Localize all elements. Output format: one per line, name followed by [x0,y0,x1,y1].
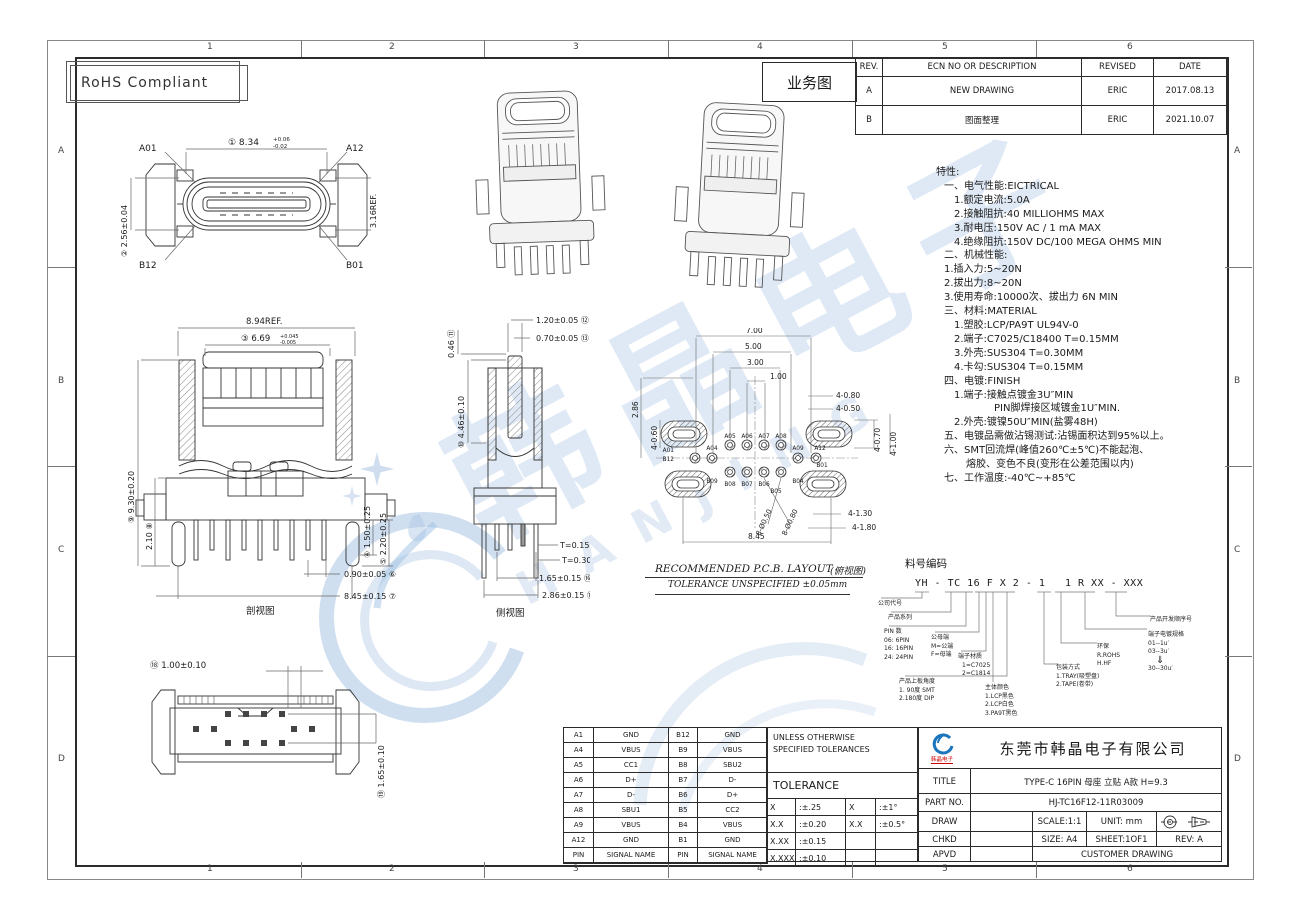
pin-cell: B6 [669,788,698,803]
zone-tick [47,267,75,268]
pin-cell: A7 [564,788,594,803]
zone-tick [47,656,75,657]
tol-cell [846,832,876,849]
company-logo-text: 韩晶电子 [931,755,953,764]
pin-cell: B7 [669,773,698,788]
pad-label-b12: B12 [663,457,675,463]
pin-cell: VBUS [698,743,767,758]
callout-plating-spec: 端子电镀规格 01--1u′ 03--3u′ ⇓ 30--30u′ [1148,631,1184,674]
third-angle-projection-icon [1160,814,1218,830]
zone-tick [1225,466,1252,467]
spec-line: 4.绝缘阻抗:150V DC/100 MEGA OHMS MIN [936,236,1224,250]
dim-0.46: 0.46 ⑪ [447,330,456,358]
pad-label-a01: A01 [663,448,675,454]
pad-label-b09: B09 [706,479,718,485]
bottom-view-drawing: ⑱ 1.00±0.10 ⑲ 1.65±0.10 [138,638,428,813]
pin-cell: VBUS [594,818,669,833]
zone-tick [301,40,302,57]
chkd-value [971,832,1033,847]
pcb-note-rule [655,594,850,595]
pin-label-b12: B12 [139,261,157,271]
pcb-layout-caption-cn: (俯视图) [830,563,866,577]
tol-cell: X [767,798,796,815]
rev-cell: 2017.08.13 [1154,77,1226,106]
section-view-caption: 剖视图 [246,605,275,617]
dim-2.86: 2.86±0.15 ⑰ [542,591,590,600]
spec-line: 三、材料:MATERIAL [936,305,1224,319]
callout-option: 03--3u′ [1148,648,1184,657]
zone-label-left: B [58,376,64,386]
pcb-layout-caption: RECOMMENDED P.C.B. LAYOUT [655,563,833,575]
pad-label-b08: B08 [724,482,736,488]
zone-label-right: A [1234,146,1240,156]
callout-title: 公司代号 [878,600,902,609]
dim-1.50: ④ 1.50±0.25 [363,506,372,558]
callout-dev-serial: 产品开发顺序号 [1150,616,1192,625]
tol-cell [876,832,919,849]
callout-title: 产品上板角度 [899,678,935,687]
pin-cell: GND [594,728,669,743]
dim-4-0.70: 4-0.70 [873,428,882,452]
dim-8.45: 8.45±0.15 ⑦ [344,592,396,601]
zone-label-top: 5 [942,42,948,52]
spec-line: 2.接触阻抗:40 MILLIOHMS MAX [936,208,1224,222]
tol-cell: :±0.5° [876,815,919,832]
zone-tick [484,40,485,57]
dim-3.16ref: 3.16REF. [369,194,378,228]
title-label: TITLE [919,769,971,794]
callout-option: 2.180度 DIP [899,695,935,704]
spec-line: 六、SMT回流焊(峰值260℃±5℃)不能起泡、 [936,444,1224,458]
pin-cell: A12 [564,833,594,848]
pin-cell: A9 [564,818,594,833]
tol-cell: X [846,798,876,815]
rev-cell: ERIC [1082,77,1154,106]
zone-tick [47,466,75,467]
spec-line: 1.塑胶:LCP/PA9T UL94V-0 [936,319,1224,333]
tol-cell: :±1° [876,798,919,815]
callout-title: 端子材质 [958,653,990,662]
callout-packaging: 包装方式 1.TRAY(吸塑盘) 2.TAPE(卷带) [1056,664,1099,690]
dim-3.00: 3.00 [747,358,764,367]
rev-cell: 图面整理 [883,106,1082,134]
dim-1.00: ⑱ 1.00±0.10 [150,661,206,671]
pad-label-a08: A08 [775,434,787,440]
dim-8.94ref: 8.94REF. [246,317,282,327]
rev-header: ECN NO OR DESCRIPTION [883,58,1082,77]
callout-option: H.HF [1097,660,1120,669]
spec-line: 3.使用寿命:10000次、拔出力 6N MIN [936,291,1224,305]
apvd-label: APVD [919,847,971,862]
pin-cell: D+ [594,773,669,788]
pad-label-b06: B06 [758,482,770,488]
zone-tick [301,862,302,878]
pin-cell: B8 [669,758,698,773]
zone-label-top: 4 [757,42,763,52]
tol-cell: X.XX [767,832,796,849]
pin-cell: A6 [564,773,594,788]
pcb-caption-rule [645,577,863,578]
tol-cell: :±.25 [796,798,846,815]
pad-label-b07: B07 [741,482,753,488]
pad-label-a09: A09 [792,446,804,452]
callout-title: 公母端 [931,634,953,643]
zone-label-right: C [1234,545,1240,555]
tol-cell: X.XXX [767,849,796,866]
dim-5.00: 5.00 [745,342,762,351]
zone-label-top: 6 [1127,42,1133,52]
rev-cell: B [856,106,883,134]
spec-line: PIN脚焊接区域镀金1U″MIN. [936,402,1224,416]
zone-tick [668,862,669,878]
dim-1.65: ⑲ 1.65±0.10 [377,745,386,798]
pin-label-b01: B01 [346,261,364,271]
pin-cell: B9 [669,743,698,758]
tolerance-note-line1: UNLESS OTHERWISE [773,732,917,744]
dim-6.69-tol-dn: -0.005 [280,340,296,346]
pin-cell: D- [698,773,767,788]
dim-2.20: ⑤ 2.20±0.25 [379,513,388,565]
partno-value: HJ-TC16F12-11R03009 [971,794,1221,812]
zone-label-top: 3 [573,42,579,52]
dim-4-0.50: 4-0.50 [836,404,860,413]
pin-cell: VBUS [698,818,767,833]
pad-label-a04: A04 [706,446,718,452]
pad-label-a12: A12 [814,446,826,452]
tolerance-grid: X :±.25 X :±1° X.X :±0.20 X.X :±0.5° X.X… [767,798,917,866]
callout-company-code: 公司代号 [878,600,902,609]
zone-tick [668,40,669,57]
zone-label-left: C [58,545,64,555]
dim-7.00: 7.00 [746,328,763,335]
company-logo-icon [930,733,954,755]
callout-option: 1.TRAY(吸塑盘) [1056,673,1099,682]
dim-4-0.60: 4-0.60 [650,426,659,450]
isometric-views-drawing [452,82,842,307]
rev-cell: A [856,77,883,106]
zone-tick [1036,862,1037,878]
pin-cell: A8 [564,803,594,818]
zone-tick [1036,40,1037,57]
pin-label-a12: A12 [346,144,364,154]
pad-label-a06: A06 [741,434,753,440]
dim-4-1.80: 4-1.80 [852,523,876,532]
draw-label: DRAW [919,812,971,832]
dim-9.30: ⑨ 9.30±0.20 [127,471,136,523]
draw-value [971,812,1033,832]
scale-value: SCALE:1:1 [1033,812,1087,832]
spec-line: 2.拔出力:8~20N [936,277,1224,291]
unit-value: UNIT: mm [1087,812,1157,832]
callout-body-color: 主体颜色 1.LCP黑色 2.LCP白色 3.PA9T黑色 [985,684,1018,718]
callout-option: 24: 24PIN [884,654,913,663]
pcb-layout-drawing: 7.00 5.00 3.00 1.00 4-0.80 4-0.50 2.86 4… [608,328,908,568]
pin-cell: D+ [698,788,767,803]
pin-cell: PIN [564,848,594,863]
pin-cell: SBU2 [698,758,767,773]
spec-line: 2.外壳:镀镍50U″MIN(盐雾48H) [936,416,1224,430]
callout-gender: 公母端 M=公端 F=母端 [931,634,953,660]
dim-4-1.00: 4-1.00 [889,432,898,456]
spec-line: 2.端子:C7025/C18400 T=0.15MM [936,333,1224,347]
pin-cell: CC2 [698,803,767,818]
spec-line: 4.卡勾:SUS304 T=0.15MM [936,361,1224,375]
zone-label-bottom: 6 [1127,864,1133,874]
zone-tick [1225,267,1252,268]
pin-cell: GND [594,833,669,848]
callout-title: 端子电镀规格 [1148,631,1184,640]
pcb-tolerance-note: TOLERANCE UNSPECIFIED ±0.05mm [668,580,847,590]
pad-label-b05: B05 [770,489,782,495]
zone-label-right: D [1234,754,1241,764]
pad-label-a05: A05 [724,434,736,440]
zone-label-bottom: 5 [942,864,948,874]
dim-t0.15: T=0.15 ⑭ [559,541,590,550]
rev-header: REV. [856,58,883,77]
spec-line: 一、电气性能:EICTRICAL [936,180,1224,194]
pin-cell: A5 [564,758,594,773]
spec-notes: 特性: 一、电气性能:EICTRICAL 1.额定电流:5.0A 2.接触阻抗:… [936,166,1224,486]
pin-cell: B5 [669,803,698,818]
tolerance-note-line2: SPECIFIED TOLERANCES [773,744,917,756]
spec-line: 二、机械性能: [936,249,1224,263]
section-view-drawing: 8.94REF. ③ 6.69 +0.045 -0.005 ⑨ 9.30±0.2… [108,308,428,618]
pin-cell: SIGNAL NAME [698,848,767,863]
partno-label: PART NO. [919,794,971,812]
callout-terminal-material: 端子材质 1=C7025 2=C1814 [958,653,990,679]
callout-option: 2=C1814 [958,670,990,679]
part-code-header: 料号编码 [905,556,947,571]
rev-cell: NEW DRAWING [883,77,1082,106]
dim-4-0.80: 4-0.80 [836,391,860,400]
customer-drawing-label: CUSTOMER DRAWING [1033,847,1221,862]
rev-cell: ERIC [1082,106,1154,134]
spec-line: 1.端子:接触点镀金3U″MIN [936,389,1224,403]
callout-title: 产品开发顺序号 [1150,616,1192,625]
spec-line: 1.额定电流:5.0A [936,194,1224,208]
callout-option: 01--1u′ [1148,640,1184,649]
dim-0.70: 0.70±0.05 ⑬ [536,334,589,343]
pin-cell: SIGNAL NAME [594,848,669,863]
callout-option: 1=C7025 [958,662,990,671]
zone-label-right: B [1234,376,1240,386]
callout-option: 3.PA9T黑色 [985,710,1018,719]
zone-label-bottom: 2 [389,864,395,874]
zone-label-bottom: 4 [757,864,763,874]
dim-1.65: 1.65±0.15 ⑯ [539,574,590,583]
tol-cell: :±0.15 [796,832,846,849]
pin-cell: B4 [669,818,698,833]
spec-line: 3.外壳:SUS304 T=0.30MM [936,347,1224,361]
dim-1.20: 1.20±0.05 ⑫ [536,316,589,325]
callout-option: 1.LCP黑色 [985,693,1018,702]
spec-line: 熔胶、变色不良(变形在公差范围以内) [936,458,1224,472]
callout-option: F=母端 [931,651,953,660]
company-name: 东莞市韩晶电子有限公司 [965,738,1221,759]
pad-label-b04: B04 [792,479,804,485]
pad-label-a07: A07 [758,434,770,440]
callout-mount-angle: 产品上板角度 1. 90度 SMT 2.180度 DIP [899,678,935,704]
dim-6.69: ③ 6.69 [241,334,270,344]
drawing-sheet: 韩晶电子 HANJING 1 2 3 4 5 6 1 2 3 4 5 6 [0,0,1300,917]
title-value: TYPE-C 16PIN 母座 立贴 A款 H=9.3 [971,769,1221,794]
tol-cell: :±0.10 [796,849,846,866]
tol-cell: :±0.20 [796,815,846,832]
rohs-compliant-box: RoHS Compliant [66,61,240,103]
dim-8.34-tol-up: +0.06 [273,137,290,143]
tolerance-block: UNLESS OTHERWISE SPECIFIED TOLERANCES TO… [766,727,918,862]
zone-label-top: 1 [207,42,213,52]
rohs-compliant-label: RoHS Compliant [70,65,248,101]
dim-2.10: 2.10 ⑧ [145,522,154,550]
callout-title: 主体颜色 [985,684,1018,693]
callout-option: 2.LCP白色 [985,701,1018,710]
callout-product-series: 产品系列 [888,614,912,623]
callout-title: 环保 [1097,643,1120,652]
zone-label-left: D [58,754,65,764]
apvd-value [971,847,1033,862]
side-view-caption: 侧视图 [496,607,525,619]
dim-t0.30: T=0.30 ⑮ [561,556,590,565]
rev-value: REV: A [1157,832,1221,847]
spec-line: 3.耐电压:150V AC / 1 mA MAX [936,222,1224,236]
pin-cell: A4 [564,743,594,758]
callout-option: 1. 90度 SMT [899,687,935,696]
dim-8.34-tol-dn: -0.02 [273,144,287,150]
pin-cell: GND [698,833,767,848]
pin-cell: GND [698,728,767,743]
callout-pin-count: PIN 数 06: 6PIN 16: 16PIN 24: 24PIN [884,628,913,662]
zone-tick [484,862,485,878]
pin-cell: PIN [669,848,698,863]
dim-2.56: ② 2.56±0.04 [120,205,129,257]
callout-title: 包装方式 [1056,664,1099,673]
dim-4.46: ⑩ 4.46±0.10 [457,396,466,448]
callout-title: 产品系列 [888,614,912,623]
down-arrow-icon: ⇓ [1148,657,1184,666]
spec-line: 七、工作温度:-40℃~+85℃ [936,472,1224,486]
zone-label-bottom: 3 [573,864,579,874]
size-value: SIZE: A4 [1033,832,1087,847]
pin-cell: VBUS [594,743,669,758]
pin-signal-table: A1 GND B12 GND A4 VBUS B9 VBUS A5 CC1 B8… [563,727,768,864]
tol-cell [876,849,919,866]
callout-option: R.ROHS [1097,652,1120,661]
rev-cell: 2021.10.07 [1154,106,1226,134]
chkd-label: CHKD [919,832,971,847]
dim-0.90: 0.90±0.05 ⑥ [344,570,396,579]
pin-cell: CC1 [594,758,669,773]
callout-option: 2.TAPE(卷带) [1056,681,1099,690]
spec-line: 五、电镀品需做沾锡测试:沾锡面积达到95%以上。 [936,430,1224,444]
callout-environment: 环保 R.ROHS H.HF [1097,643,1120,669]
callout-option: 06: 6PIN [884,637,913,646]
zone-label-bottom: 1 [207,864,213,874]
pin-cell: B12 [669,728,698,743]
side-view-drawing: 1.20±0.05 ⑫ 0.70±0.05 ⑬ 0.46 ⑪ ⑩ 4.46±0.… [438,298,590,620]
tol-cell: X.X [846,815,876,832]
dim-4-1.30: 4-1.30 [848,509,872,518]
dim-2.86: 2.86 [631,401,640,418]
dim-8.34: ① 8.34 [228,138,259,148]
revision-table: REV. ECN NO OR DESCRIPTION REVISED DATE … [855,57,1227,135]
sheet-value: SHEET:1OF1 [1087,832,1157,847]
callout-option: M=公端 [931,643,953,652]
spec-line: 四、电镀:FINISH [936,375,1224,389]
pin-cell: A1 [564,728,594,743]
rev-header: DATE [1154,58,1226,77]
pin-label-a01: A01 [139,144,157,154]
pin-cell: D- [594,788,669,803]
callout-option: 30--30u′ [1148,665,1184,674]
dim-1.00: 1.00 [770,372,787,381]
tol-cell: X.X [767,815,796,832]
zone-label-left: A [58,146,64,156]
rev-header: REVISED [1082,58,1154,77]
pad-label-b01: B01 [816,463,828,469]
spec-line: 特性: [936,166,1224,180]
tol-cell [846,849,876,866]
pin-cell: SBU1 [594,803,669,818]
tolerance-title: TOLERANCE [767,772,917,798]
spec-line: 1.插入力:5~20N [936,263,1224,277]
zone-label-top: 2 [389,42,395,52]
front-view-drawing: ① 8.34 +0.06 -0.02 A01 A12 B12 B01 ② 2.5… [95,112,435,302]
callout-title: PIN 数 [884,628,913,637]
callout-option: 16: 16PIN [884,645,913,654]
title-block: 韩晶电子 东莞市韩晶电子有限公司 TITLE TYPE-C 16PIN 母座 立… [918,727,1222,862]
pin-cell: B1 [669,833,698,848]
zone-tick [852,40,853,57]
